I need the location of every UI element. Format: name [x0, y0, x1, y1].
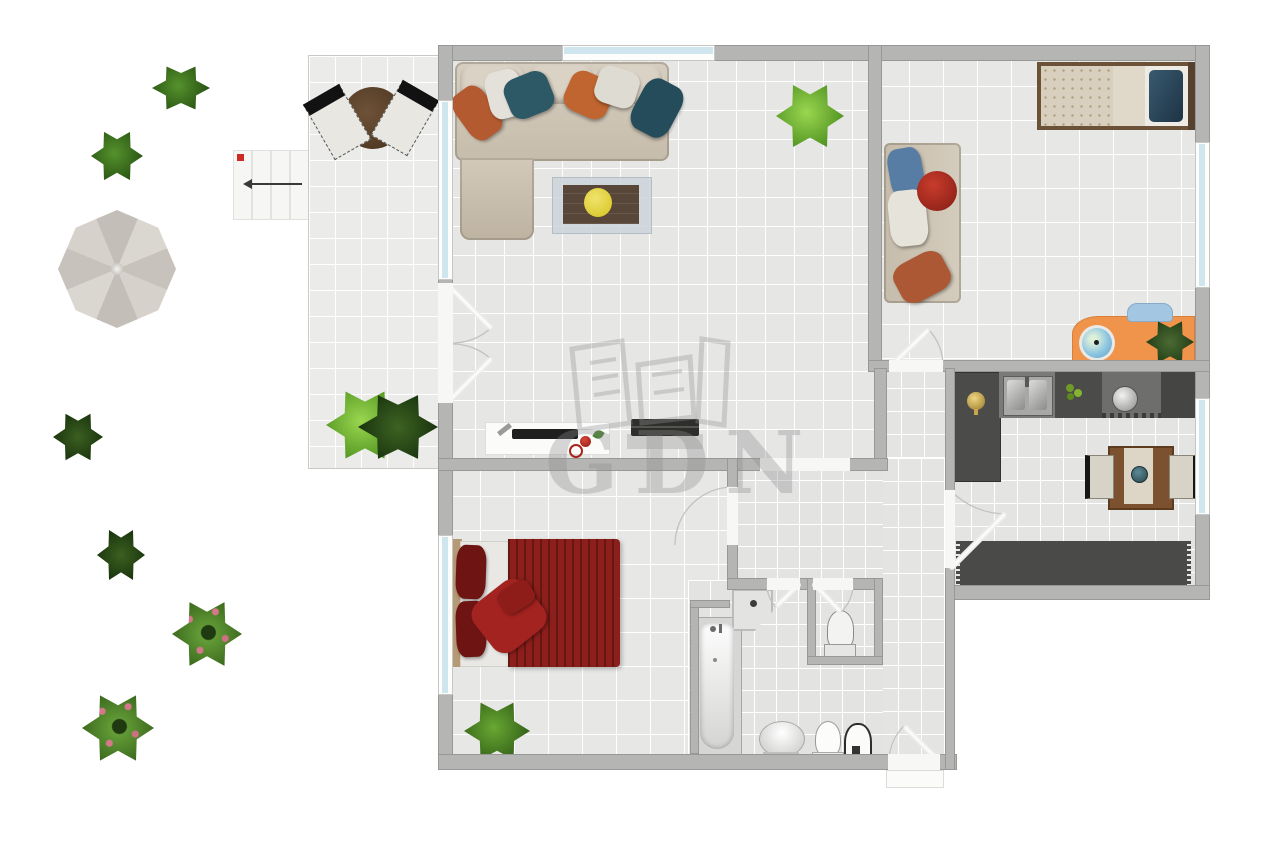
window-glass [1199, 400, 1205, 513]
wall-bath-top [727, 578, 883, 590]
sofa-chaise [460, 158, 534, 240]
garden-palm-icon [53, 410, 103, 464]
bathroom-door-gap [767, 578, 800, 590]
bathtub-drain [713, 658, 717, 662]
window-glass [442, 537, 448, 693]
wall-bath-left [690, 600, 699, 754]
wall-kitchen-bottom [945, 585, 1210, 600]
wall-right [1195, 45, 1210, 600]
living-hall-opening [760, 458, 850, 471]
vegetables-icon [1067, 393, 1074, 400]
bedroom-window [438, 535, 453, 695]
globe-axis-dot [1094, 340, 1099, 345]
bathtub-faucet-icon [710, 626, 716, 632]
bedroom-door-gap [727, 487, 738, 545]
red-cup [580, 436, 591, 447]
single-bed-mattress [1041, 66, 1113, 126]
vegetables-icon [1066, 384, 1074, 392]
stairs-arrow-head [243, 179, 252, 189]
window-glass [564, 47, 713, 54]
corridor-floor [875, 458, 953, 763]
sink-faucet-icon [1025, 377, 1029, 387]
single-bed-sheet [1113, 66, 1145, 126]
vegetables-icon [1074, 389, 1082, 397]
garden-bush-icon [91, 128, 143, 184]
single-bed-footboard [1188, 62, 1195, 130]
wall-bath-jog [690, 600, 730, 608]
garden-bush-icon [152, 63, 210, 113]
entry-door-gap [888, 754, 940, 770]
wc-toilet-bowl [827, 610, 854, 648]
living-terrace-window [438, 100, 453, 280]
tv [512, 429, 578, 439]
stairs-direction-arrow-icon [248, 183, 302, 185]
kitchen-corner-counter [953, 372, 1001, 482]
wall-living-kids-separator [868, 45, 882, 370]
wc-door-gap [813, 578, 853, 590]
bathtub-spout [719, 624, 722, 633]
wall-living-right-lower [874, 368, 887, 463]
hall-floor [733, 458, 883, 586]
garden-palm-icon [97, 526, 145, 584]
entry-doorstep [886, 770, 944, 788]
brass-bowl [967, 392, 985, 410]
single-bed-pillow [1149, 70, 1183, 122]
sink-basin [1007, 380, 1025, 410]
kids-room-window [1195, 142, 1210, 288]
oven-dashes [1102, 413, 1161, 418]
bed-pillow-darkred [455, 544, 487, 599]
media-console [631, 419, 699, 436]
umbrella-pole [111, 263, 123, 275]
shower-head-icon [750, 600, 757, 607]
floor-plan-canvas: GDN [0, 0, 1280, 849]
wall-bottom [438, 754, 957, 770]
window-glass [1199, 144, 1205, 286]
pot-on-hob [1112, 386, 1138, 412]
sink-basin [1029, 380, 1047, 410]
terrace-door-gap [438, 283, 453, 403]
table-centerpiece [1131, 466, 1148, 483]
kitchen-counter-end [1161, 372, 1195, 418]
wall-kitchen-left [945, 368, 955, 770]
rug-fringe [956, 541, 960, 586]
kitchen-door-gap [945, 490, 955, 568]
kitchen-window [1195, 398, 1210, 515]
rug-fringe [1187, 541, 1191, 586]
bathtub [700, 623, 734, 749]
kitchen-rug [956, 541, 1191, 586]
dining-chair [1085, 455, 1114, 499]
wall-wc-right [874, 578, 883, 665]
desk-chair [1127, 303, 1173, 322]
window-glass [442, 102, 448, 278]
kids-round-pillow-red [917, 171, 957, 211]
kids-room-door-gap [889, 360, 943, 372]
flower-bush-icon [82, 690, 154, 766]
wall-wc-left [807, 578, 816, 665]
brass-bowl-stem [974, 409, 978, 415]
dining-chair [1169, 455, 1198, 499]
hall-strip-floor [878, 365, 953, 465]
flower-bush-icon [172, 597, 242, 671]
table-bowl-yellow [584, 188, 612, 217]
wall-top [438, 45, 1210, 61]
stairs-red-marker [237, 154, 244, 161]
red-ring [569, 444, 583, 458]
wall-wc-bottom [807, 656, 883, 665]
living-top-window [562, 45, 715, 61]
media-console-base [627, 434, 703, 449]
